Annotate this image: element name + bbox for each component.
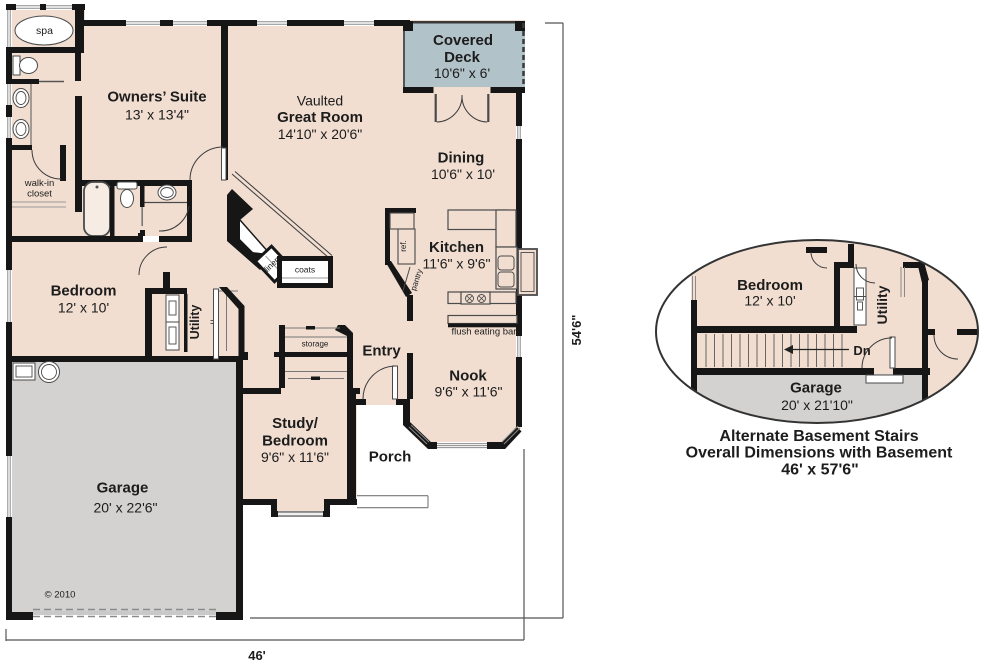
svg-text:46': 46' [248, 648, 266, 663]
svg-text:Deck: Deck [444, 49, 481, 66]
svg-text:Owners’ Suite: Owners’ Suite [107, 89, 206, 106]
svg-text:Dining: Dining [438, 150, 485, 167]
svg-text:Garage: Garage [97, 480, 149, 497]
svg-text:54'6": 54'6" [569, 315, 584, 346]
svg-text:Dn: Dn [853, 343, 870, 358]
svg-text:20' x 21'10": 20' x 21'10" [781, 397, 853, 413]
svg-text:10'6" x 10': 10'6" x 10' [431, 166, 495, 182]
svg-text:46' x 57'6": 46' x 57'6" [781, 462, 858, 479]
svg-text:14'10" x 20'6": 14'10" x 20'6" [278, 126, 363, 142]
svg-text:Great Room: Great Room [277, 109, 363, 126]
svg-text:spa: spa [36, 25, 53, 37]
svg-text:Overall Dimensions with Baseme: Overall Dimensions with Basement [686, 445, 953, 462]
svg-text:Bedroom: Bedroom [737, 277, 803, 294]
svg-text:Nook: Nook [449, 368, 487, 385]
svg-text:Kitchen: Kitchen [429, 239, 484, 256]
svg-text:Vaulted: Vaulted [297, 93, 343, 109]
svg-text:Bedroom: Bedroom [262, 433, 328, 450]
svg-text:12' x 10': 12' x 10' [58, 300, 109, 316]
svg-text:ref.: ref. [399, 240, 408, 252]
svg-text:flush eating bar: flush eating bar [452, 327, 517, 338]
svg-text:closet: closet [27, 189, 52, 200]
svg-text:walk-in: walk-in [24, 178, 55, 189]
svg-text:coats: coats [295, 265, 315, 275]
svg-text:20' x 22'6": 20' x 22'6" [93, 500, 157, 516]
svg-text:12' x 10': 12' x 10' [744, 293, 795, 309]
svg-text:storage: storage [302, 340, 329, 349]
svg-text:Bedroom: Bedroom [51, 283, 117, 300]
svg-text:9'6" x 11'6": 9'6" x 11'6" [261, 449, 329, 465]
svg-text:Utility: Utility [188, 305, 202, 340]
svg-text:10'6" x 6': 10'6" x 6' [434, 65, 490, 81]
svg-text:9'6" x 11'6": 9'6" x 11'6" [435, 384, 503, 400]
svg-text:13' x 13'4": 13' x 13'4" [125, 107, 189, 123]
svg-text:Covered: Covered [433, 32, 493, 49]
svg-text:11'6" x 9'6": 11'6" x 9'6" [423, 256, 491, 272]
svg-text:Porch: Porch [369, 449, 412, 466]
svg-text:Study/: Study/ [272, 415, 319, 432]
svg-text:© 2010: © 2010 [45, 590, 76, 601]
svg-text:Entry: Entry [362, 343, 401, 360]
svg-text:Garage: Garage [790, 380, 842, 397]
svg-text:Utility: Utility [874, 285, 890, 324]
svg-text:Alternate Basement Stairs: Alternate Basement Stairs [719, 428, 918, 445]
